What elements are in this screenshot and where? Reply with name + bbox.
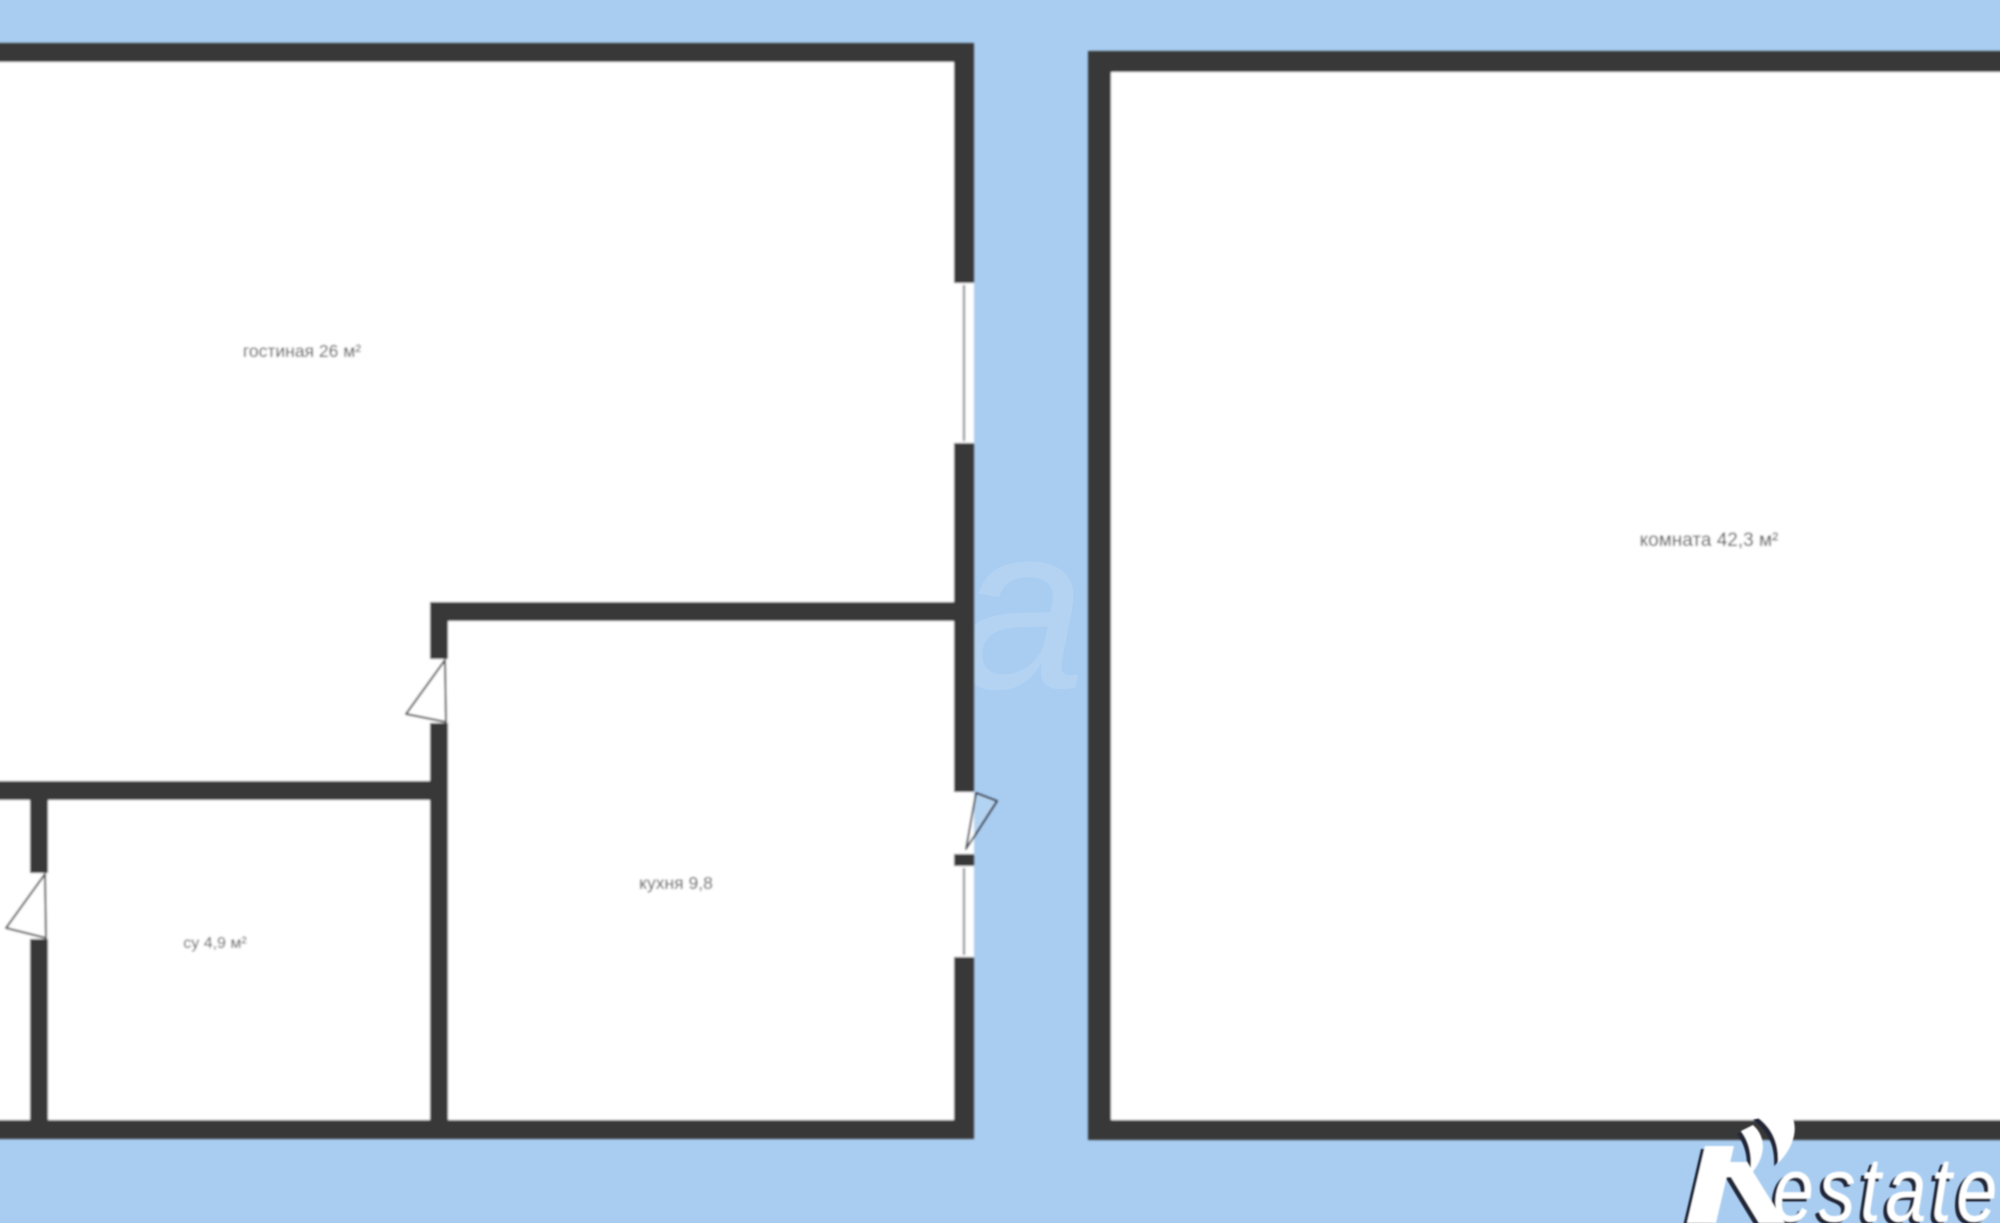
svg-text:су 4,9 м²: су 4,9 м² bbox=[183, 935, 247, 952]
svg-text:гостиная 26 м²: гостиная 26 м² bbox=[243, 341, 361, 361]
svg-text:estate: estate bbox=[1773, 1138, 2000, 1223]
svg-text:комната 42,3 м²: комната 42,3 м² bbox=[1640, 530, 1779, 551]
svg-text:кухня 9,8: кухня 9,8 bbox=[639, 873, 713, 893]
svg-text:a: a bbox=[955, 475, 1086, 738]
